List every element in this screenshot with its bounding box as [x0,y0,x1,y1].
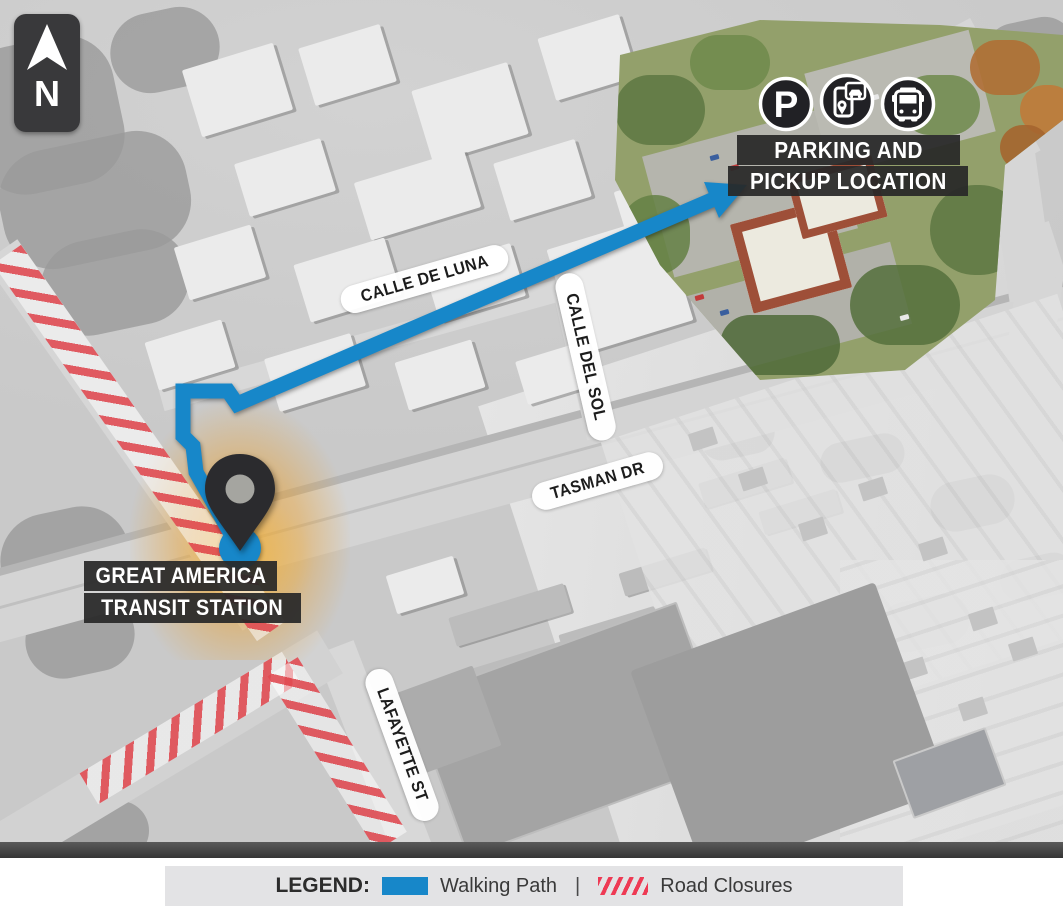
walking-path-swatch [382,877,428,895]
legend-title: LEGEND: [275,874,370,898]
destination-label-line1: PARKING AND [737,135,960,165]
legend-road-closures-label: Road Closures [660,875,792,898]
legend-separator: | [575,875,580,898]
rideshare-app-icon[interactable] [818,72,876,130]
svg-text:P: P [774,84,799,125]
north-arrow-icon [14,14,80,76]
destination-label-line2: PICKUP LOCATION [728,166,968,196]
road-closure-swatch [598,877,648,895]
station-map-pin[interactable] [198,452,282,554]
compass-n-label: N [34,76,60,112]
parking-icon[interactable]: P [757,75,815,133]
station-label-line2: TRANSIT STATION [84,593,301,623]
map-bottom-edge [0,842,1063,858]
satellite-map: CALLE DE LUNA CALLE DEL SOL TASMAN DR LA… [0,0,1063,858]
bus-icon[interactable] [879,75,937,133]
station-label-line1: GREAT AMERICA [84,561,277,591]
legend-walking-path-label: Walking Path [440,875,557,898]
legend-bar: LEGEND: Walking Path | Road Closures [165,866,903,906]
transit-map-page: CALLE DE LUNA CALLE DEL SOL TASMAN DR LA… [0,0,1063,906]
north-compass: N [14,14,80,132]
